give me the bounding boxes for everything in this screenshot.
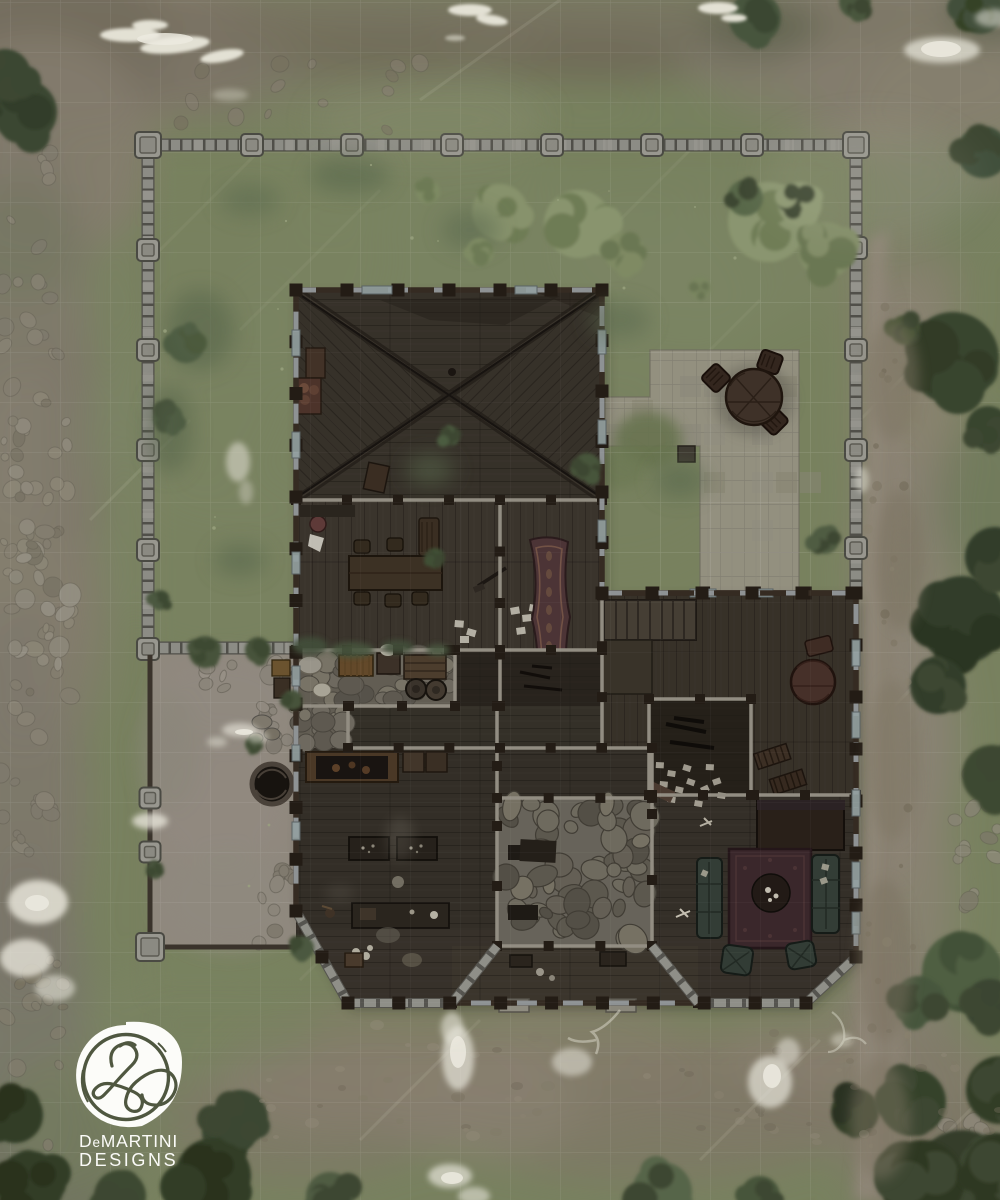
svg-text:DESIGNS: DESIGNS: [79, 1150, 178, 1170]
